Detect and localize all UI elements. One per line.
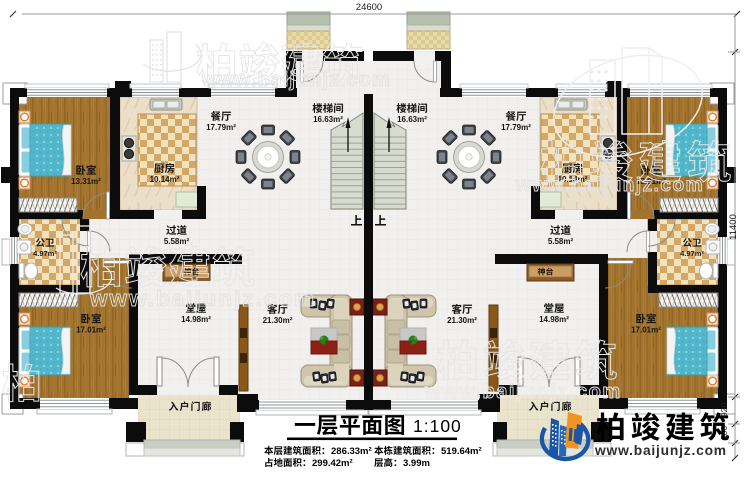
svg-text:24600: 24600 xyxy=(356,2,382,13)
svg-text:4.97m²: 4.97m² xyxy=(33,249,57,258)
svg-text:1:100: 1:100 xyxy=(413,416,462,436)
svg-text:17.79m²: 17.79m² xyxy=(206,123,236,132)
svg-text:www.baijunjz.com: www.baijunjz.com xyxy=(424,381,622,403)
svg-text:14.98m²: 14.98m² xyxy=(181,315,211,324)
svg-text:4.97m²: 4.97m² xyxy=(680,249,704,258)
svg-text:299.42m²: 299.42m² xyxy=(312,458,353,469)
svg-text:16.63m²: 16.63m² xyxy=(397,115,427,124)
svg-text:286.33m²: 286.33m² xyxy=(331,446,372,457)
svg-text:16.63m²: 16.63m² xyxy=(313,115,343,124)
svg-text:11400: 11400 xyxy=(728,214,739,240)
svg-text:5.58m²: 5.58m² xyxy=(548,237,574,246)
svg-text:17.01m²: 17.01m² xyxy=(76,325,106,334)
svg-text:17.79m²: 17.79m² xyxy=(501,123,531,132)
svg-text:519.64m²: 519.64m² xyxy=(441,446,482,457)
svg-text:10.14m²: 10.14m² xyxy=(150,175,180,184)
svg-text:21.30m²: 21.30m² xyxy=(263,316,293,325)
svg-text:www.baijunjz.com: www.baijunjz.com xyxy=(89,286,316,311)
svg-text:13.31m²: 13.31m² xyxy=(71,177,101,186)
svg-text:3.99m: 3.99m xyxy=(403,458,430,469)
svg-text:www.baijunjz.com: www.baijunjz.com xyxy=(594,443,727,458)
svg-text:www.baijunjz.com: www.baijunjz.com xyxy=(201,69,391,91)
svg-text:www.baijunjz.com: www.baijunjz.com xyxy=(515,175,704,196)
svg-text:5.58m²: 5.58m² xyxy=(164,237,190,246)
svg-text:21.30m²: 21.30m² xyxy=(447,316,477,325)
svg-text:17.01m²: 17.01m² xyxy=(631,325,661,334)
svg-text:14.98m²: 14.98m² xyxy=(539,315,569,324)
svg-text:920: 920 xyxy=(719,403,729,417)
